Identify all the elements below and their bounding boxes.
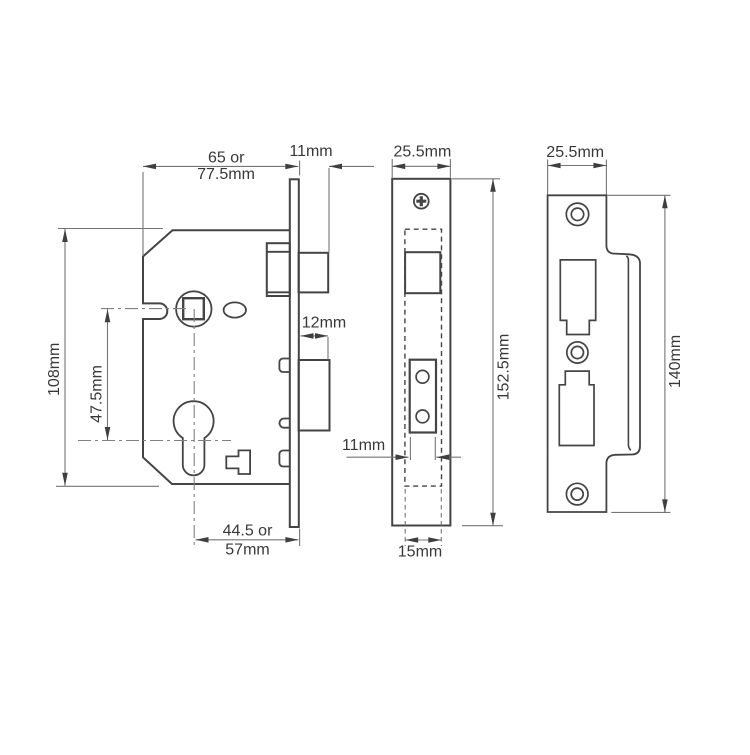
svg-text:77.5mm: 77.5mm [197,166,255,183]
svg-text:15mm: 15mm [398,544,442,561]
svg-text:44.5 or: 44.5 or [223,523,273,540]
svg-text:25.5mm: 25.5mm [546,144,604,161]
svg-text:65 or: 65 or [208,150,245,167]
svg-text:57mm: 57mm [225,542,269,559]
svg-text:25.5mm: 25.5mm [394,143,452,160]
svg-text:47.5mm: 47.5mm [89,365,106,423]
svg-text:108mm: 108mm [46,343,63,396]
svg-text:12mm: 12mm [302,314,346,331]
svg-text:11mm: 11mm [342,437,385,454]
svg-text:11mm: 11mm [289,143,332,160]
svg-text:152.5mm: 152.5mm [496,334,513,401]
svg-text:140mm: 140mm [667,335,684,388]
